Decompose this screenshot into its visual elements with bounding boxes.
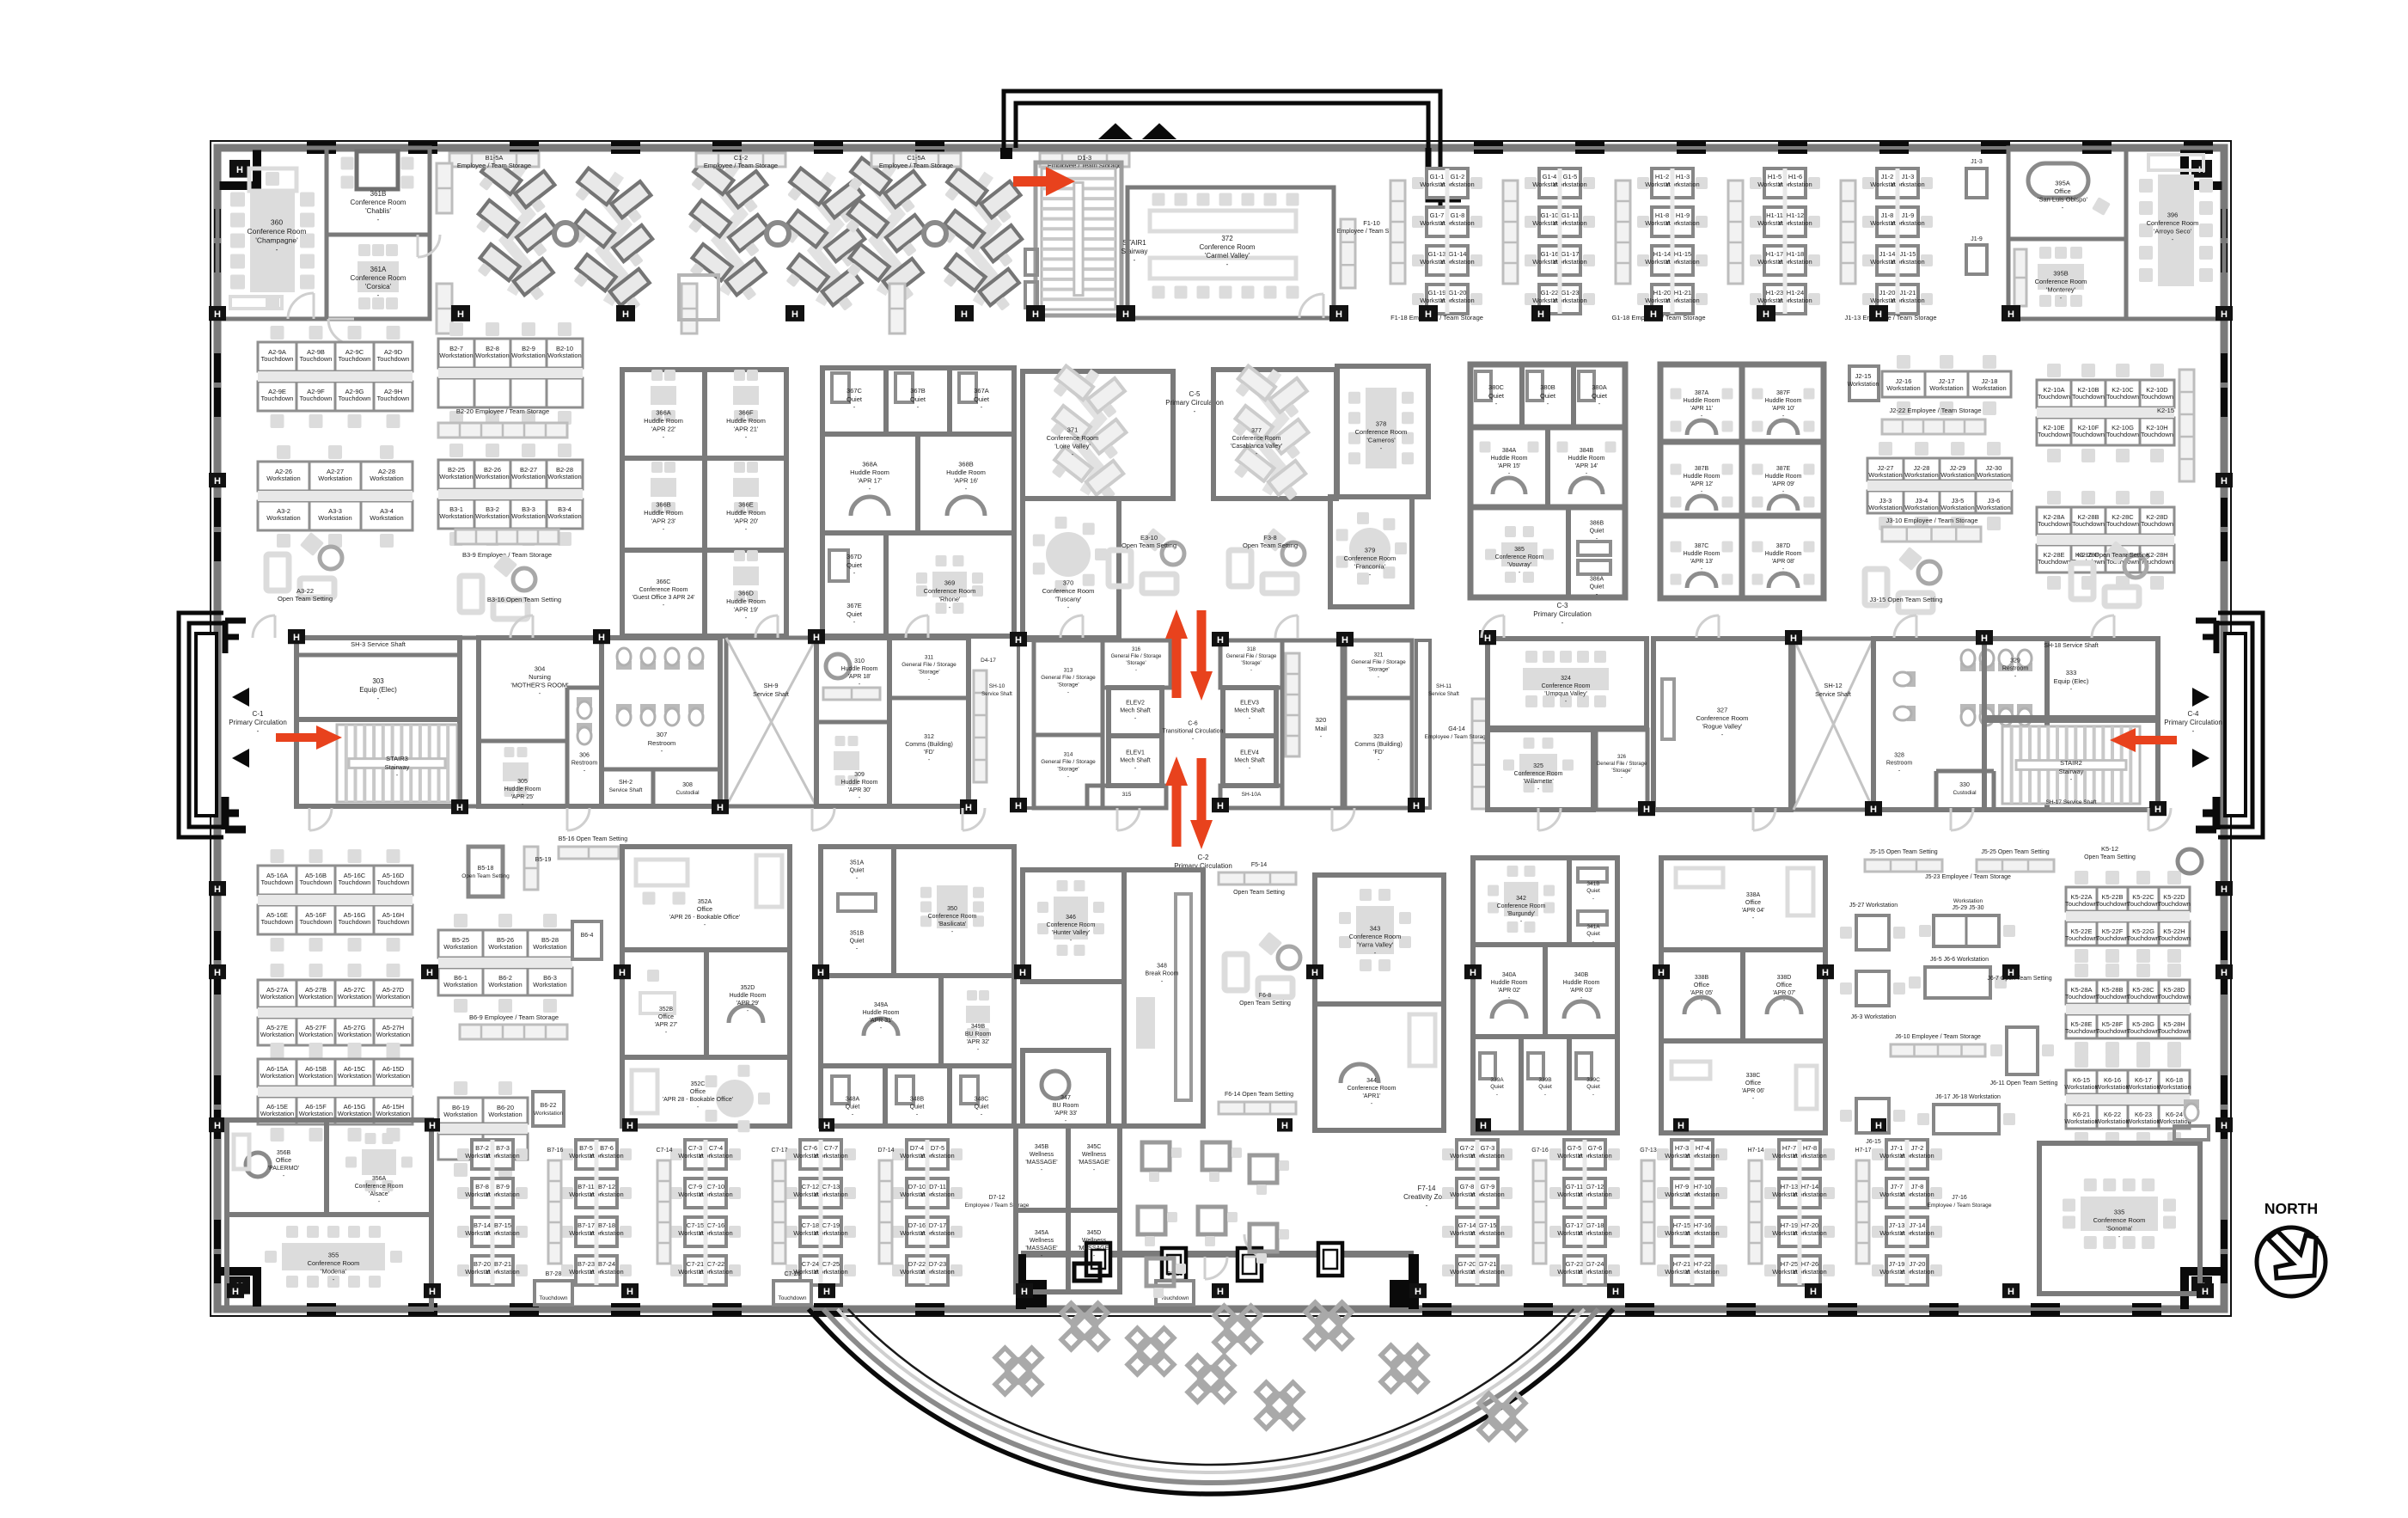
svg-text:Conference Room: Conference Room	[1495, 554, 1544, 560]
svg-text:Touchdown: Touchdown	[2141, 520, 2173, 528]
svg-text:339A: 339A	[1490, 1077, 1504, 1083]
svg-text:378: 378	[1376, 420, 1387, 428]
svg-text:348C: 348C	[975, 1097, 989, 1103]
svg-text:H7-25: H7-25	[1781, 1260, 1798, 1268]
svg-text:Workstation: Workstation	[475, 473, 509, 480]
svg-text:SH-3 Service Shaft: SH-3 Service Shaft	[351, 640, 406, 648]
svg-text:G7-9: G7-9	[1481, 1183, 1495, 1191]
svg-text:H7-17: H7-17	[1855, 1148, 1871, 1154]
svg-text:Service Shaft: Service Shaft	[609, 787, 643, 793]
svg-text:'Basilicata': 'Basilicata'	[938, 921, 967, 927]
svg-text:Open Team Setting: Open Team Setting	[1121, 542, 1176, 549]
svg-text:'APR 19': 'APR 19'	[734, 606, 759, 614]
svg-text:Quiet: Quiet	[1538, 1084, 1552, 1090]
svg-text:'MASSAGE': 'MASSAGE'	[1025, 1160, 1057, 1166]
svg-text:H: H	[214, 309, 221, 320]
svg-text:321: 321	[1374, 652, 1384, 658]
svg-text:J6-3 Workstation: J6-3 Workstation	[1851, 1014, 1896, 1020]
svg-text:'Sonoma': 'Sonoma'	[2106, 1225, 2133, 1233]
svg-text:D7-4: D7-4	[910, 1144, 924, 1152]
svg-text:Huddle Room: Huddle Room	[1568, 456, 1605, 462]
svg-text:C1-5A: C1-5A	[907, 154, 925, 162]
svg-text:'APR 02': 'APR 02'	[1498, 988, 1521, 994]
svg-text:Office: Office	[1776, 982, 1792, 989]
svg-text:B7-23: B7-23	[578, 1260, 595, 1268]
svg-text:H7-20: H7-20	[1801, 1221, 1818, 1229]
svg-text:B3-16 Open Team Setting: B3-16 Open Team Setting	[487, 596, 561, 603]
svg-text:-: -	[1135, 668, 1137, 673]
svg-text:H7-21: H7-21	[1673, 1260, 1690, 1268]
svg-text:'Guest Office 3 APR 24': 'Guest Office 3 APR 24'	[633, 595, 695, 601]
svg-text:H1-24: H1-24	[1787, 289, 1804, 297]
svg-text:-: -	[1592, 1092, 1594, 1098]
svg-text:Office: Office	[276, 1158, 291, 1164]
svg-text:D7-10: D7-10	[908, 1183, 926, 1191]
svg-text:Touchdown: Touchdown	[2158, 934, 2191, 942]
svg-text:Workstation: Workstation	[338, 993, 371, 1001]
svg-text:Quiet: Quiet	[1586, 931, 1600, 937]
svg-text:H7-14: H7-14	[1801, 1183, 1818, 1191]
svg-text:Workstation: Workstation	[338, 1110, 371, 1117]
svg-text:366C: 366C	[657, 579, 671, 585]
svg-text:'APR 21': 'APR 21'	[734, 425, 759, 433]
svg-text:377: 377	[1251, 428, 1262, 434]
svg-text:Conference Room: Conference Room	[1349, 933, 1402, 940]
svg-text:Workstation: Workstation	[376, 993, 410, 1001]
svg-text:H1-6: H1-6	[1788, 173, 1802, 181]
svg-text:Huddle Room: Huddle Room	[1491, 456, 1528, 462]
svg-text:G7-20: G7-20	[1458, 1260, 1476, 1268]
svg-text:Open Team Setting: Open Team Setting	[278, 595, 333, 603]
svg-text:Touchdown: Touchdown	[2065, 993, 2098, 1001]
svg-text:341B: 341B	[1586, 881, 1599, 887]
svg-text:H: H	[429, 1287, 436, 1297]
svg-text:'APR 12': 'APR 12'	[1690, 481, 1714, 487]
svg-text:306: 306	[579, 753, 590, 759]
svg-text:'Vouvray': 'Vouvray'	[1507, 562, 1531, 568]
svg-text:'Tuscany': 'Tuscany'	[1055, 596, 1082, 603]
svg-text:'Franconia': 'Franconia'	[1354, 563, 1386, 571]
svg-text:General File / Storage: General File / Storage	[1111, 654, 1162, 659]
svg-text:H1-5: H1-5	[1768, 173, 1782, 181]
svg-text:H: H	[1612, 1287, 1619, 1297]
svg-text:Employee / Team Storage: Employee / Team Storage	[1928, 1203, 1992, 1209]
svg-text:352A: 352A	[698, 899, 712, 905]
svg-text:C7-25: C7-25	[822, 1260, 840, 1268]
svg-text:H: H	[1019, 968, 1026, 978]
svg-text:J5-23 Employee / Team Storage: J5-23 Employee / Team Storage	[1925, 874, 2011, 880]
svg-text:Office: Office	[1694, 982, 1709, 989]
svg-text:387B: 387B	[1695, 466, 1709, 472]
svg-text:J1-2: J1-2	[1881, 173, 1894, 181]
svg-text:G1-8: G1-8	[1451, 211, 1465, 219]
svg-text:338C: 338C	[1746, 1073, 1761, 1079]
svg-text:342: 342	[1516, 896, 1526, 902]
svg-text:J7-20: J7-20	[1910, 1260, 1926, 1268]
svg-text:Workstation: Workstation	[475, 512, 509, 520]
svg-text:General File / Storage: General File / Storage	[1597, 762, 1647, 767]
svg-text:H7-7: H7-7	[1782, 1144, 1796, 1152]
svg-text:H: H	[1335, 309, 1342, 320]
svg-text:Touchdown: Touchdown	[2141, 431, 2173, 438]
svg-text:Workstation: Workstation	[534, 1111, 564, 1117]
svg-text:Quiet: Quiet	[1586, 1084, 1600, 1090]
svg-text:Workstation: Workstation	[533, 943, 566, 951]
svg-text:G7-15: G7-15	[1479, 1221, 1497, 1229]
svg-text:'Alsace': 'Alsace'	[369, 1191, 389, 1197]
svg-text:Service Shaft: Service Shaft	[1815, 692, 1851, 698]
svg-text:352B: 352B	[659, 1007, 674, 1013]
svg-text:335: 335	[2114, 1209, 2125, 1216]
svg-text:'Casablanca Valley': 'Casablanca Valley'	[1231, 444, 1282, 450]
svg-text:H7-26: H7-26	[1801, 1260, 1818, 1268]
svg-text:Workstation: Workstation	[338, 1072, 371, 1080]
svg-text:Quiet: Quiet	[846, 610, 863, 618]
svg-text:J6-5 J6-6 Workstation: J6-5 J6-6 Workstation	[1930, 957, 1989, 963]
svg-text:B7-21: B7-21	[494, 1260, 511, 1268]
svg-text:'Yarra Valley': 'Yarra Valley'	[1357, 941, 1394, 949]
svg-text:'Storage': 'Storage'	[1057, 682, 1079, 689]
svg-text:304: 304	[535, 665, 546, 673]
svg-text:B6-4: B6-4	[581, 933, 594, 939]
svg-text:Wellness: Wellness	[1030, 1238, 1054, 1244]
svg-text:B7-11: B7-11	[578, 1183, 594, 1191]
svg-text:'APR 04': 'APR 04'	[1742, 908, 1765, 914]
svg-text:Touchdown: Touchdown	[2096, 993, 2129, 1001]
svg-text:387C: 387C	[1695, 543, 1709, 549]
svg-text:'Burgundy': 'Burgundy'	[1507, 911, 1536, 917]
svg-text:H: H	[1015, 801, 1022, 811]
svg-text:Workstation: Workstation	[376, 1110, 410, 1117]
svg-text:H: H	[214, 476, 221, 487]
svg-text:G7-5: G7-5	[1568, 1144, 1582, 1152]
svg-text:C7-9: C7-9	[688, 1183, 702, 1191]
svg-text:Conference Room: Conference Room	[351, 199, 406, 206]
svg-text:356A: 356A	[372, 1176, 387, 1182]
svg-text:H7-9: H7-9	[1675, 1183, 1689, 1191]
svg-text:H: H	[1658, 968, 1665, 978]
svg-text:J7-14: J7-14	[1910, 1221, 1926, 1229]
svg-text:Open Team Setting: Open Team Setting	[461, 873, 510, 879]
svg-text:'Loire Valley': 'Loire Valley'	[1054, 443, 1091, 450]
svg-text:361B: 361B	[370, 190, 387, 198]
svg-text:352D: 352D	[741, 985, 755, 991]
svg-text:-: -	[257, 727, 260, 735]
svg-text:H: H	[1480, 1121, 1487, 1131]
svg-text:Conference Room: Conference Room	[1514, 771, 1563, 777]
svg-text:Employee / Team Storage: Employee / Team Storage	[965, 1203, 1030, 1209]
svg-text:H: H	[1810, 1287, 1817, 1297]
svg-text:'San Luis Obispo': 'San Luis Obispo'	[2038, 196, 2087, 204]
svg-text:Stairway: Stairway	[385, 763, 410, 771]
svg-text:Touchdown: Touchdown	[540, 1295, 568, 1301]
svg-text:Quiet: Quiet	[910, 1105, 925, 1111]
svg-text:J6-17 J6-18 Workstation: J6-17 J6-18 Workstation	[1935, 1094, 2001, 1100]
svg-text:H: H	[2008, 1287, 2014, 1297]
svg-text:Touchdown: Touchdown	[2158, 993, 2191, 1001]
svg-text:H: H	[1763, 309, 1769, 320]
svg-text:Touchdown: Touchdown	[339, 395, 371, 402]
svg-text:314: 314	[1064, 752, 1073, 758]
svg-text:Conference Room: Conference Room	[639, 587, 688, 593]
svg-text:Touchdown: Touchdown	[2038, 431, 2070, 438]
svg-text:Conference Room: Conference Room	[1344, 554, 1397, 562]
svg-text:C1-2: C1-2	[734, 154, 748, 162]
svg-text:Huddle Room: Huddle Room	[1684, 551, 1720, 557]
svg-text:Conference Room: Conference Room	[351, 274, 406, 282]
svg-text:G1-20: G1-20	[1449, 289, 1467, 297]
svg-text:Huddle Room: Huddle Room	[863, 1010, 900, 1016]
svg-text:H: H	[1790, 634, 1797, 644]
svg-text:H: H	[1311, 968, 1318, 978]
svg-text:344: 344	[1366, 1078, 1377, 1084]
svg-text:309: 309	[854, 772, 865, 778]
svg-text:Huddle Room: Huddle Room	[946, 468, 986, 476]
svg-text:H: H	[2221, 476, 2228, 487]
svg-text:Workstation: Workstation	[475, 352, 509, 359]
svg-text:H: H	[2221, 968, 2228, 978]
svg-text:312: 312	[924, 734, 934, 740]
svg-text:D7-11: D7-11	[929, 1183, 946, 1191]
svg-text:Touchdown: Touchdown	[2127, 934, 2160, 942]
svg-text:380C: 380C	[1488, 383, 1505, 391]
svg-text:Primary Circulation: Primary Circulation	[2164, 719, 2222, 726]
svg-text:H: H	[717, 803, 724, 813]
svg-text:Workstation: Workstation	[2064, 1083, 2098, 1091]
svg-text:Comms (Building): Comms (Building)	[905, 742, 953, 748]
svg-text:'MASSAGE': 'MASSAGE'	[1025, 1246, 1057, 1252]
svg-text:C7-16: C7-16	[707, 1221, 724, 1229]
svg-text:H1-8: H1-8	[1655, 211, 1669, 219]
svg-text:'MASSAGE': 'MASSAGE'	[1078, 1246, 1109, 1252]
svg-text:H: H	[456, 803, 463, 813]
svg-text:-: -	[1592, 939, 1594, 945]
svg-text:Conference Room: Conference Room	[308, 1259, 360, 1267]
svg-text:H: H	[1875, 309, 1882, 320]
svg-text:G7-11: G7-11	[1566, 1183, 1583, 1191]
svg-text:Huddle Room: Huddle Room	[1765, 398, 1802, 404]
svg-text:Workstation: Workstation	[547, 473, 581, 480]
svg-text:Workstation: Workstation	[2095, 1117, 2129, 1125]
svg-text:Touchdown: Touchdown	[2072, 431, 2105, 438]
svg-text:C-4: C-4	[2188, 710, 2199, 718]
svg-text:B7-16: B7-16	[547, 1148, 564, 1154]
svg-text:'APR 08': 'APR 08'	[1772, 559, 1795, 565]
svg-text:Workstation: Workstation	[376, 1072, 410, 1080]
svg-text:SH-10: SH-10	[989, 683, 1005, 689]
svg-text:Huddle Room: Huddle Room	[1684, 474, 1720, 480]
svg-text:'APR 11': 'APR 11'	[1690, 406, 1713, 412]
svg-text:'APR 15': 'APR 15'	[1498, 463, 1521, 469]
svg-text:329: 329	[2010, 658, 2020, 664]
svg-text:326: 326	[1617, 755, 1627, 760]
svg-text:J5-25 Open Team Setting: J5-25 Open Team Setting	[1981, 849, 2049, 855]
svg-text:D7-16: D7-16	[908, 1221, 926, 1229]
svg-text:H: H	[293, 633, 300, 643]
svg-text:Huddle Room: Huddle Room	[850, 468, 889, 476]
svg-text:'APR 29': 'APR 29'	[736, 1001, 760, 1007]
svg-text:G1-10: G1-10	[1541, 211, 1559, 219]
svg-text:355: 355	[328, 1252, 339, 1259]
svg-text:Quiet: Quiet	[1586, 888, 1600, 894]
svg-text:387D: 387D	[1776, 543, 1791, 549]
svg-text:Service Shaft: Service Shaft	[981, 692, 1012, 697]
svg-text:Conference Room: Conference Room	[1355, 428, 1408, 436]
svg-text:323: 323	[1373, 734, 1384, 740]
svg-text:387E: 387E	[1776, 466, 1791, 472]
svg-text:Huddle Room: Huddle Room	[841, 666, 878, 672]
svg-text:SH-17 Service Shaft: SH-17 Service Shaft	[2046, 799, 2097, 805]
svg-text:H: H	[1217, 1287, 1224, 1297]
svg-text:'APR 17': 'APR 17'	[858, 477, 883, 485]
svg-text:Workstation: Workstation	[488, 943, 522, 951]
svg-text:H: H	[1217, 635, 1224, 646]
svg-text:Quiet: Quiet	[910, 395, 926, 403]
svg-text:Quiet: Quiet	[846, 395, 863, 403]
svg-text:Workstation: Workstation	[1953, 898, 1983, 904]
svg-text:338B: 338B	[1695, 975, 1709, 981]
svg-text:H: H	[214, 968, 221, 978]
svg-text:B5-18: B5-18	[478, 866, 494, 872]
svg-text:Workstation: Workstation	[511, 473, 545, 480]
svg-text:Touchdown: Touchdown	[2072, 393, 2105, 401]
svg-text:B5-19: B5-19	[535, 857, 552, 863]
svg-text:H1-15: H1-15	[1674, 250, 1691, 258]
svg-text:386A: 386A	[1590, 577, 1604, 583]
svg-text:B6-22: B6-22	[541, 1103, 557, 1109]
svg-text:Conference Room: Conference Room	[1497, 903, 1546, 909]
svg-text:H: H	[1981, 634, 1988, 644]
svg-text:Workstation: Workstation	[318, 514, 351, 522]
svg-text:H: H	[1484, 634, 1491, 644]
svg-text:325: 325	[1533, 763, 1543, 769]
svg-text:F1-10: F1-10	[1363, 219, 1380, 227]
svg-text:C7-10: C7-10	[707, 1183, 724, 1191]
svg-text:Workstation: Workstation	[338, 1031, 371, 1038]
svg-text:-: -	[1067, 774, 1069, 780]
svg-text:Workstation: Workstation	[547, 512, 581, 520]
svg-text:Huddle Room: Huddle Room	[726, 509, 766, 517]
svg-text:'APR 13': 'APR 13'	[1690, 559, 1714, 565]
svg-text:Touchdown: Touchdown	[2038, 393, 2070, 401]
svg-text:C7-18: C7-18	[802, 1221, 819, 1229]
svg-text:Employee / Team Storage: Employee / Team Storage	[879, 162, 953, 169]
svg-text:J5-29 J5-30: J5-29 J5-30	[1953, 905, 1984, 911]
svg-text:J7-13: J7-13	[1889, 1221, 1905, 1229]
svg-text:G4-14: G4-14	[1448, 726, 1465, 732]
svg-text:387A: 387A	[1695, 390, 1709, 396]
svg-text:Quiet: Quiet	[975, 1105, 989, 1111]
svg-text:BU Room: BU Room	[1053, 1103, 1079, 1109]
svg-text:Touchdown: Touchdown	[779, 1295, 807, 1301]
svg-text:J1-14: J1-14	[1879, 250, 1896, 258]
svg-text:B7-12: B7-12	[598, 1183, 615, 1191]
svg-text:C-3: C-3	[1557, 602, 1568, 609]
svg-text:C-6: C-6	[1188, 721, 1197, 727]
svg-text:Conference Room: Conference Room	[928, 914, 977, 920]
svg-text:339B: 339B	[1538, 1077, 1551, 1083]
svg-text:C-5: C-5	[1189, 390, 1201, 398]
svg-text:NORTH: NORTH	[2264, 1200, 2318, 1217]
svg-text:C7-7: C7-7	[824, 1144, 838, 1152]
svg-text:Workstation: Workstation	[2126, 1117, 2160, 1125]
svg-text:G1-17: G1-17	[1562, 250, 1580, 258]
svg-text:Workstation: Workstation	[1904, 471, 1938, 479]
svg-text:H1-23: H1-23	[1766, 289, 1783, 297]
svg-text:G7-3: G7-3	[1481, 1144, 1495, 1152]
svg-text:366D: 366D	[738, 590, 755, 597]
svg-text:H: H	[1650, 309, 1657, 320]
svg-text:368A: 368A	[862, 461, 877, 468]
svg-text:Workstation: Workstation	[439, 352, 473, 359]
svg-text:B7-8: B7-8	[475, 1183, 489, 1191]
svg-text:'APR 31': 'APR 31'	[870, 1018, 893, 1024]
svg-text:Service Shaft: Service Shaft	[1428, 692, 1459, 697]
svg-text:H: H	[1281, 1121, 1288, 1131]
svg-text:367D: 367D	[846, 553, 863, 560]
svg-text:Equip (Elec): Equip (Elec)	[359, 686, 397, 694]
svg-text:Workstation: Workstation	[266, 514, 300, 522]
svg-text:Workstation: Workstation	[299, 993, 333, 1001]
svg-text:379: 379	[1365, 547, 1376, 554]
svg-text:B7-20: B7-20	[474, 1260, 491, 1268]
svg-text:Workstation: Workstation	[299, 1072, 333, 1080]
svg-text:Mech Shaft: Mech Shaft	[1120, 758, 1150, 764]
svg-text:H: H	[1425, 309, 1432, 320]
svg-text:G1-1: G1-1	[1430, 173, 1445, 181]
svg-text:Employee / Team Storage: Employee / Team Storage	[1425, 734, 1489, 740]
svg-text:H: H	[2221, 309, 2228, 320]
svg-text:'Storage': 'Storage'	[1367, 667, 1389, 673]
svg-text:C7-24: C7-24	[802, 1260, 819, 1268]
svg-text:Touchdown: Touchdown	[2072, 520, 2105, 528]
svg-text:H7-3: H7-3	[1675, 1144, 1689, 1152]
svg-text:Touchdown: Touchdown	[2106, 431, 2139, 438]
svg-text:Office: Office	[697, 907, 712, 913]
svg-text:324: 324	[1561, 676, 1571, 682]
svg-text:Workstation: Workstation	[1848, 382, 1879, 388]
svg-text:G7-2: G7-2	[1460, 1144, 1475, 1152]
svg-text:'Chablis': 'Chablis'	[365, 207, 391, 215]
svg-text:Touchdown: Touchdown	[2127, 1027, 2160, 1035]
svg-text:H: H	[2221, 1121, 2228, 1131]
svg-text:'APR 22': 'APR 22'	[651, 425, 676, 433]
svg-text:338D: 338D	[1777, 975, 1792, 981]
svg-text:Conference Room: Conference Room	[355, 1184, 404, 1190]
svg-text:348: 348	[1157, 964, 1167, 970]
svg-text:361A: 361A	[370, 266, 387, 273]
svg-text:H1-21: H1-21	[1674, 289, 1691, 297]
svg-text:SH-11: SH-11	[1436, 683, 1452, 689]
svg-text:Restroom: Restroom	[571, 761, 598, 767]
svg-text:Custodial: Custodial	[675, 790, 700, 796]
svg-text:H: H	[791, 309, 798, 320]
svg-text:-: -	[1496, 1092, 1498, 1098]
svg-text:Touchdown: Touchdown	[261, 878, 294, 886]
svg-text:Workstation: Workstation	[2064, 1117, 2098, 1125]
svg-text:J5-27 Workstation: J5-27 Workstation	[1849, 903, 1898, 909]
svg-text:Workstation: Workstation	[443, 1111, 477, 1118]
svg-text:Touchdown: Touchdown	[300, 355, 333, 363]
svg-text:Huddle Room: Huddle Room	[1491, 980, 1528, 986]
svg-text:H1-20: H1-20	[1653, 289, 1671, 297]
svg-text:Open Team Setting: Open Team Setting	[1239, 1001, 1291, 1007]
svg-text:D7-22: D7-22	[908, 1260, 926, 1268]
svg-text:Workstation: Workstation	[1977, 471, 2010, 479]
svg-text:Huddle Room: Huddle Room	[1684, 398, 1720, 404]
svg-text:Workstation: Workstation	[318, 474, 351, 482]
svg-text:H: H	[1217, 801, 1224, 811]
